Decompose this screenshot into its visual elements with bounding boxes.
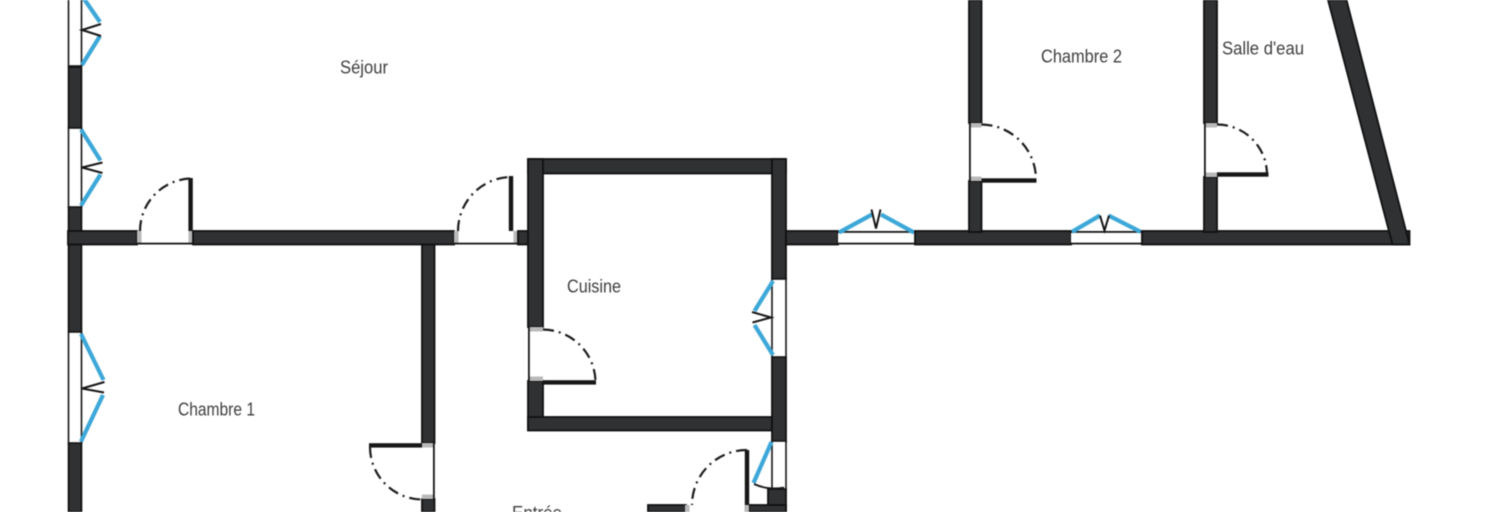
svg-text:Chambre 2: Chambre 2 [1041,46,1122,67]
svg-text:Chambre 1: Chambre 1 [178,399,255,420]
svg-text:Salle d'eau: Salle d'eau [1222,38,1304,59]
svg-text:Entrée: Entrée [512,502,562,512]
svg-text:Cuisine: Cuisine [567,276,621,297]
svg-text:Séjour: Séjour [340,57,388,78]
